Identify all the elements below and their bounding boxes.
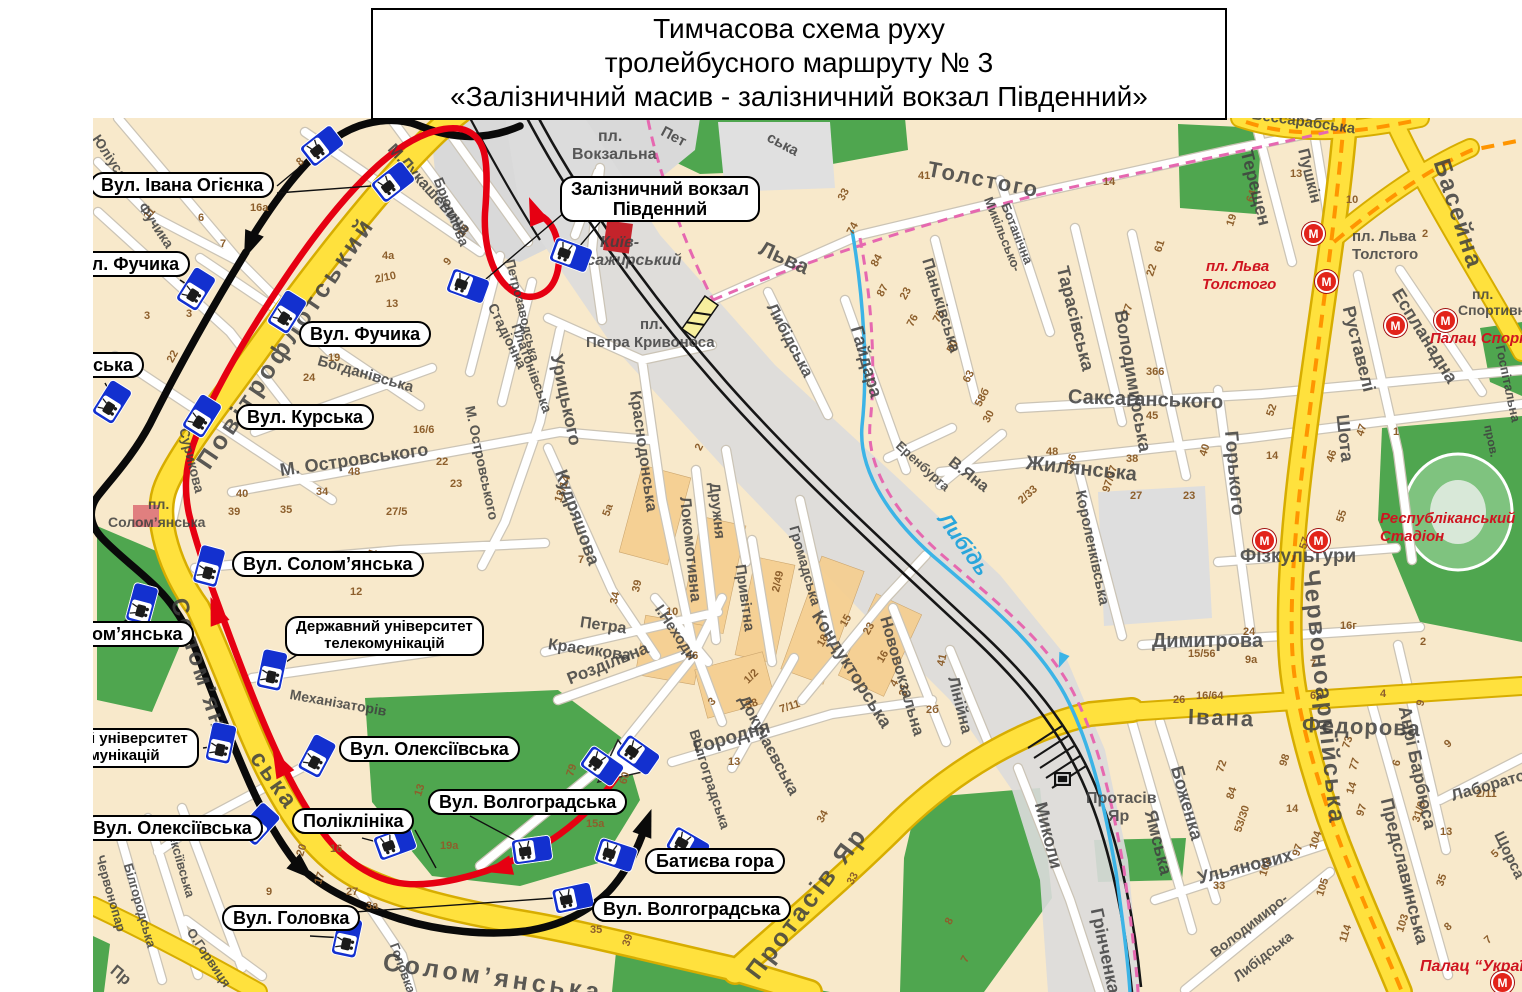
house-number: 35 bbox=[280, 504, 292, 516]
street-label: Спортивна bbox=[1458, 302, 1522, 318]
stop-label: Вул. Олексіївська bbox=[93, 815, 263, 841]
house-number: 7 bbox=[220, 238, 226, 250]
street-label: Київ- bbox=[600, 234, 639, 252]
metro-icon: М bbox=[1253, 529, 1276, 552]
stop-label: Вул. Фучика bbox=[299, 321, 431, 347]
stop-label: Залізничний вокзал Південний bbox=[560, 176, 760, 222]
house-number: 10 bbox=[1346, 194, 1358, 206]
stop-label: Вул. Солом’янська bbox=[93, 621, 194, 647]
house-number: 16/64 bbox=[1196, 690, 1224, 702]
house-number: 39 bbox=[228, 506, 240, 518]
title-line: тролейбусного маршруту № 3 bbox=[373, 46, 1225, 80]
street-label: пл. Льва bbox=[1352, 228, 1416, 245]
street-label: Толстого bbox=[1202, 276, 1276, 293]
house-number: 24 bbox=[303, 372, 315, 384]
stop-label: Вул. Волгоградська bbox=[428, 789, 627, 815]
street-label: Івана bbox=[1188, 704, 1256, 732]
metro-icon: М bbox=[1315, 270, 1338, 293]
house-number: 34 bbox=[316, 486, 328, 498]
house-number: 14 bbox=[1286, 803, 1298, 815]
street-label: пл. bbox=[598, 128, 622, 146]
stop-label: Вул. Головка bbox=[222, 905, 360, 931]
house-number: 22 bbox=[436, 456, 448, 468]
house-number: 2б bbox=[926, 704, 939, 716]
street-label: Толстого bbox=[1352, 246, 1418, 263]
house-number: 16/6 bbox=[413, 424, 434, 436]
trolleybus-pictogram bbox=[510, 834, 553, 865]
house-number: 4а bbox=[382, 250, 394, 262]
title-line: Тимчасова схема руху bbox=[373, 12, 1225, 46]
house-number: 27 bbox=[1130, 490, 1142, 502]
protasiv-yar-station-icon bbox=[1054, 772, 1071, 786]
street-label: Протасів bbox=[1086, 790, 1157, 808]
house-number: 12 bbox=[350, 586, 362, 598]
house-number: 9 bbox=[266, 886, 272, 898]
house-number: 19а bbox=[440, 840, 458, 852]
house-number: 13 bbox=[728, 756, 740, 768]
street-label: пл. Льва bbox=[1206, 258, 1269, 275]
house-number: 2 bbox=[1422, 228, 1428, 240]
map-screenshot: Тимчасова схема рухутролейбусного маршру… bbox=[0, 0, 1522, 992]
stop-label: Вул. Івана Огієнка bbox=[93, 172, 274, 198]
house-number: 9а bbox=[1245, 654, 1257, 666]
stop-label: Вул. Курська bbox=[93, 352, 144, 378]
metro-icon: М bbox=[1491, 971, 1514, 992]
street-label: Петра Кривоноса bbox=[586, 334, 715, 351]
house-number: 16г bbox=[1340, 620, 1357, 632]
stop-label: Вул. Фучика bbox=[93, 251, 190, 277]
street-label: Вокзальна bbox=[572, 146, 657, 164]
house-number: 39 bbox=[630, 579, 644, 593]
house-number: 23 bbox=[1183, 490, 1195, 502]
street-label: Димитрова bbox=[1152, 630, 1263, 653]
stop-label: Державний університет телекомунікацій bbox=[285, 616, 484, 656]
stop-label: Вул. Курська bbox=[236, 404, 374, 430]
street-label: Республіканський bbox=[1380, 510, 1515, 527]
house-number: 13 bbox=[386, 298, 398, 310]
stop-label: Державний університет телекомунікацій bbox=[93, 728, 199, 768]
map-canvas: ПовітрофлотськийСолом’янськаСолом’янська… bbox=[93, 118, 1522, 992]
trolleybus-stop-icon bbox=[510, 834, 553, 865]
house-number: 3 bbox=[144, 310, 150, 322]
stop-label: Вул. Олексіївська bbox=[339, 736, 520, 762]
house-number: 1 bbox=[1393, 426, 1399, 438]
house-number: 16 bbox=[330, 843, 342, 855]
house-number: 34 bbox=[608, 591, 622, 605]
house-number: 16а bbox=[250, 202, 268, 214]
stop-label: Поліклініка bbox=[292, 808, 414, 834]
house-number: 27 bbox=[346, 886, 358, 898]
title-line: «Залізничний масив - залізничний вокзал … bbox=[373, 80, 1225, 114]
metro-icon: М bbox=[1302, 222, 1325, 245]
house-number: 40 bbox=[236, 488, 248, 500]
street-label: Стадіон bbox=[1380, 528, 1444, 545]
street-label: Солом’янська bbox=[108, 514, 205, 530]
stop-label: Батиєва гора bbox=[645, 848, 785, 874]
scheme-title: Тимчасова схема рухутролейбусного маршру… bbox=[371, 8, 1227, 120]
house-number: 14 bbox=[1266, 450, 1278, 462]
stop-label: Вул. Волгоградська bbox=[592, 896, 791, 922]
house-number: 26 bbox=[1173, 694, 1185, 706]
house-number: 35 bbox=[590, 924, 602, 936]
street-label: пл. bbox=[640, 316, 663, 333]
street-label: пл. bbox=[148, 496, 169, 512]
house-number: 6 bbox=[198, 212, 204, 224]
stop-label: Вул. Солом’янська bbox=[232, 551, 424, 577]
house-number: 23 bbox=[450, 478, 462, 490]
street-label: Яр bbox=[1108, 808, 1129, 826]
house-number: 4 bbox=[1380, 688, 1386, 700]
house-number: 3а bbox=[366, 900, 378, 912]
street-label: пл. bbox=[1472, 286, 1493, 302]
house-number: 2 bbox=[1420, 636, 1426, 648]
house-number: 27/5 bbox=[386, 506, 407, 518]
metro-icon: М bbox=[1307, 529, 1330, 552]
street-label: Палац Спорту bbox=[1430, 330, 1522, 347]
house-number: 41 bbox=[935, 653, 949, 667]
house-number: 13 bbox=[1440, 826, 1452, 838]
metro-icon: М bbox=[1384, 314, 1407, 337]
house-number: 366 bbox=[1146, 366, 1164, 378]
metro-icon: М bbox=[1434, 309, 1457, 332]
house-number: 15а bbox=[586, 818, 604, 830]
house-number: 14 bbox=[1103, 176, 1115, 188]
